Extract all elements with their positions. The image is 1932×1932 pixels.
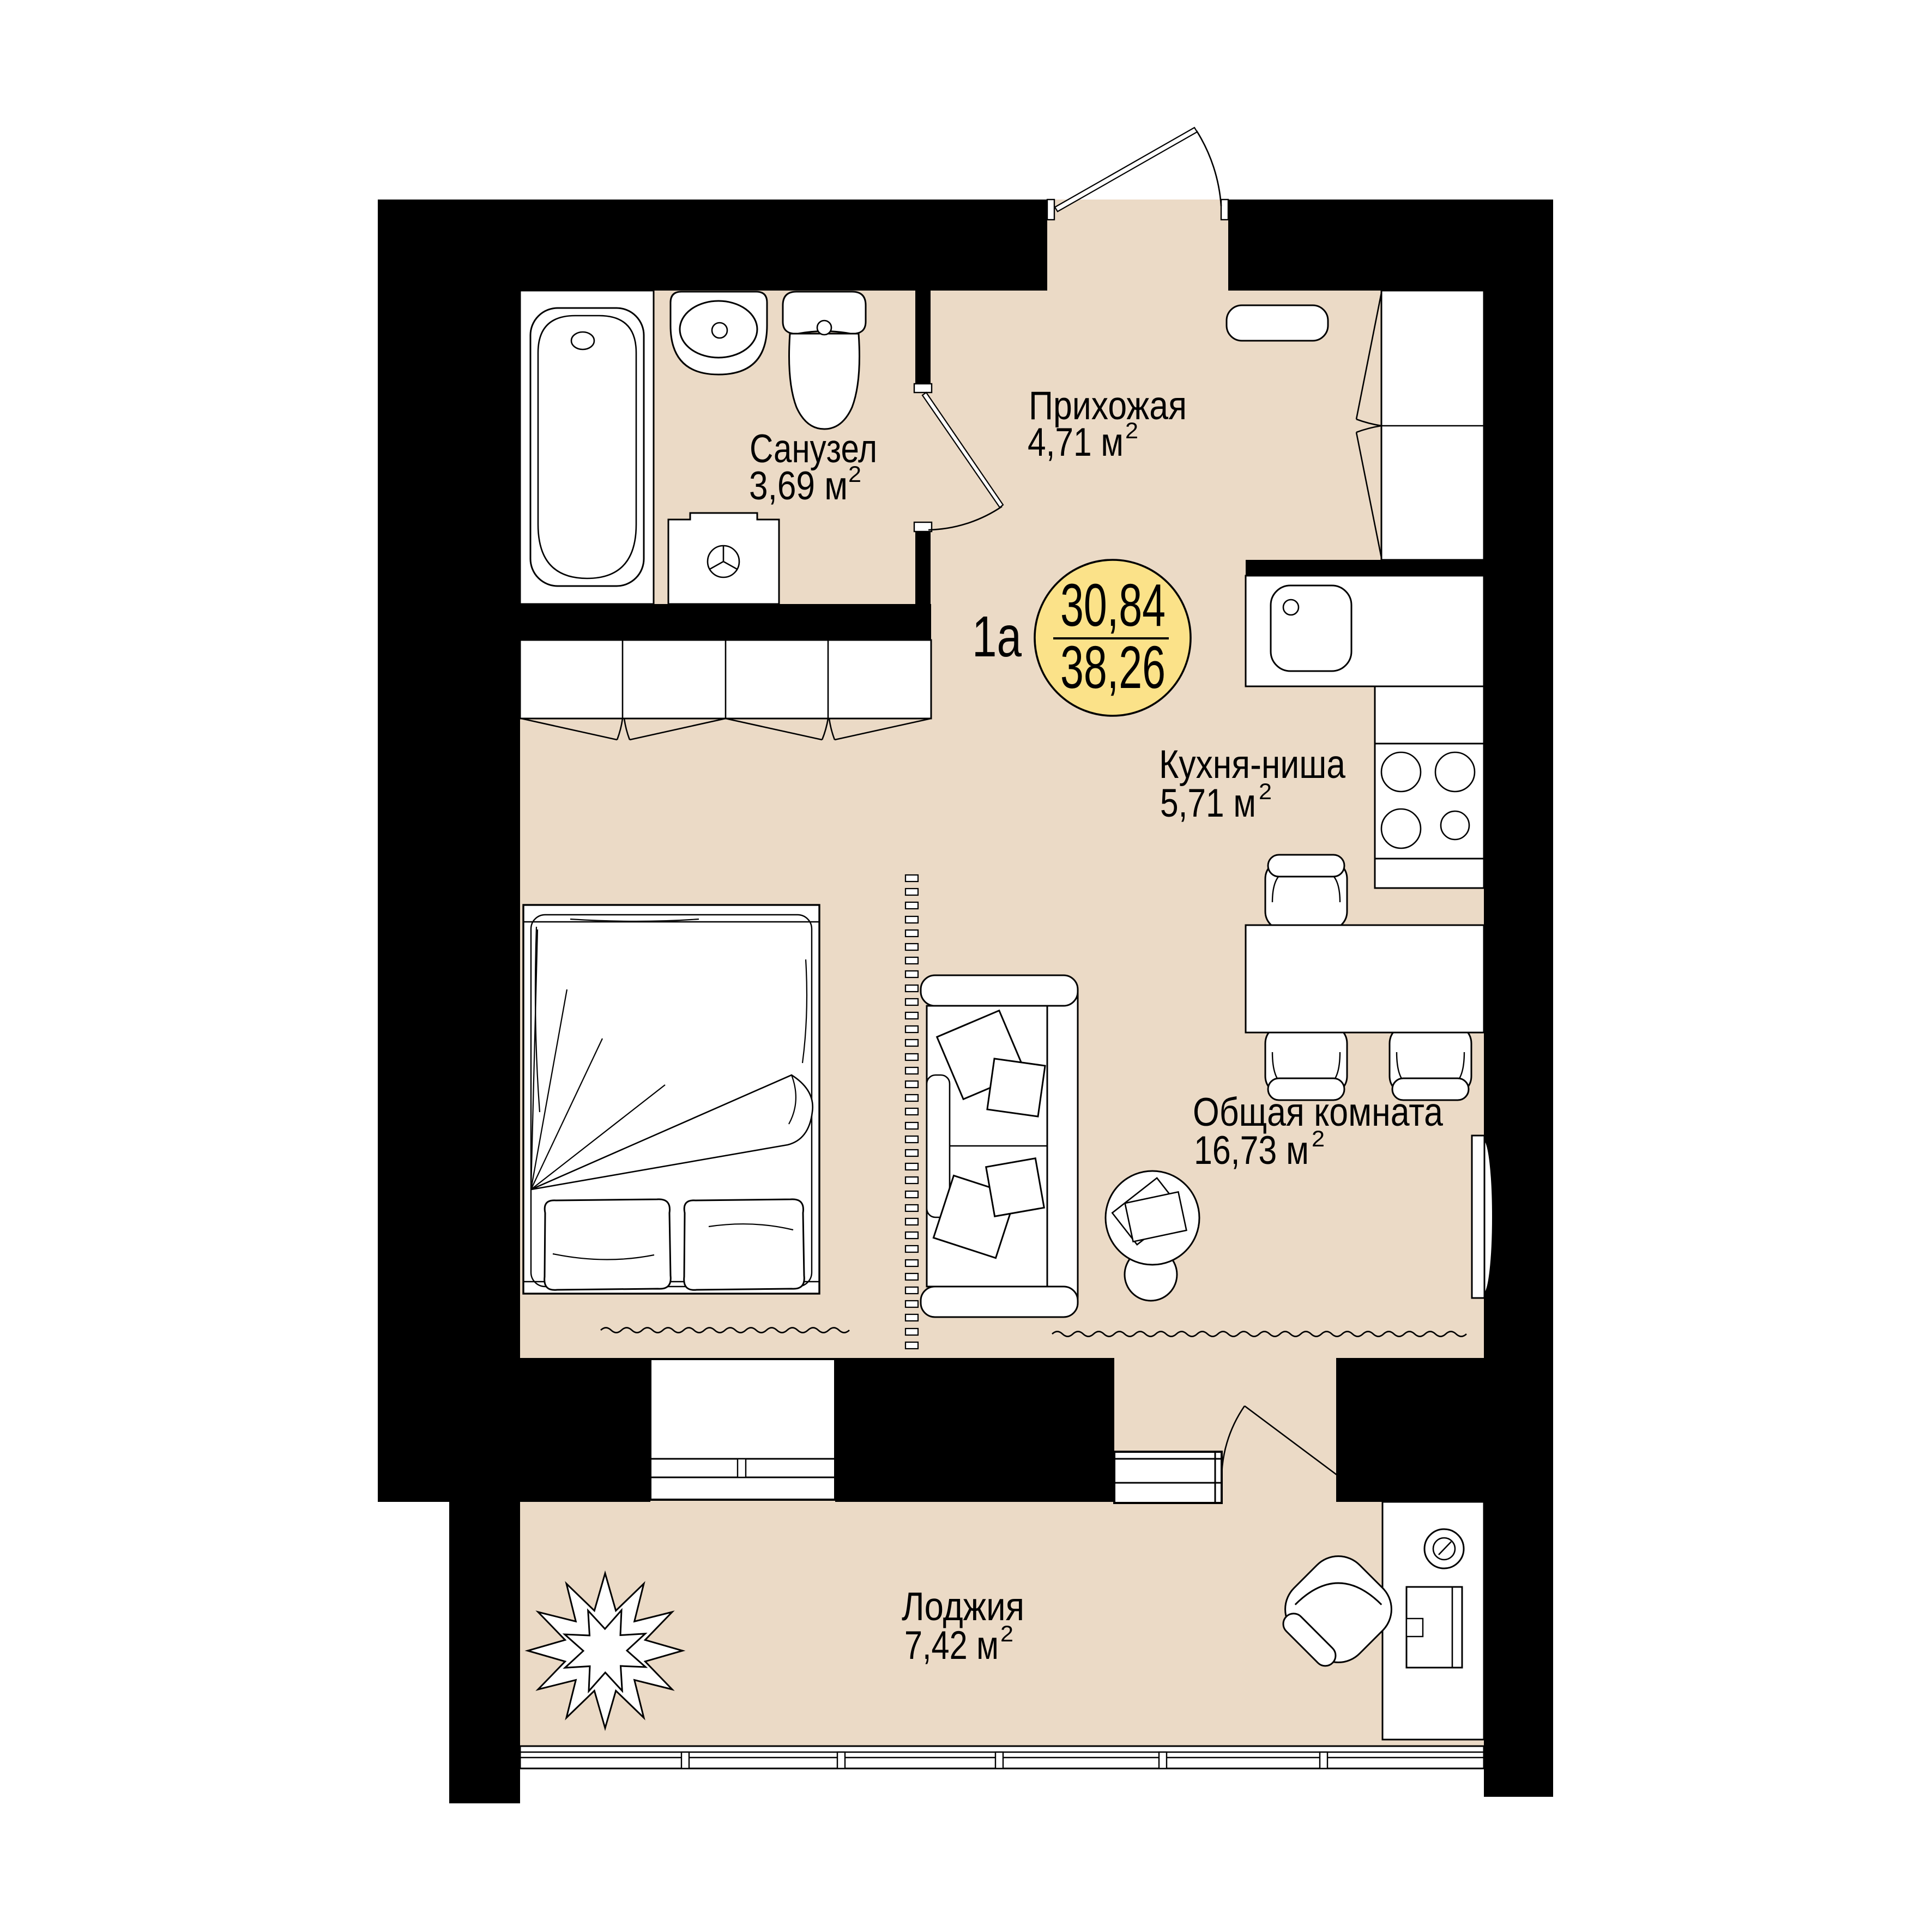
svg-text:3,69 м: 3,69 м xyxy=(749,464,848,508)
svg-text:2: 2 xyxy=(1125,418,1138,443)
svg-text:7,42 м: 7,42 м xyxy=(904,1623,999,1668)
svg-text:16,73 м: 16,73 м xyxy=(1194,1128,1309,1173)
svg-text:2: 2 xyxy=(1312,1126,1325,1151)
svg-text:2: 2 xyxy=(1259,778,1272,804)
svg-text:38,26: 38,26 xyxy=(1060,634,1166,701)
svg-text:1а: 1а xyxy=(972,605,1022,669)
svg-text:2: 2 xyxy=(848,461,861,487)
svg-text:30,84: 30,84 xyxy=(1060,572,1166,639)
svg-text:2: 2 xyxy=(1000,1621,1013,1646)
svg-text:Кухня-ниша: Кухня-ниша xyxy=(1159,742,1345,787)
svg-text:5,71 м: 5,71 м xyxy=(1160,781,1256,825)
svg-text:4,71 м: 4,71 м xyxy=(1028,420,1124,464)
